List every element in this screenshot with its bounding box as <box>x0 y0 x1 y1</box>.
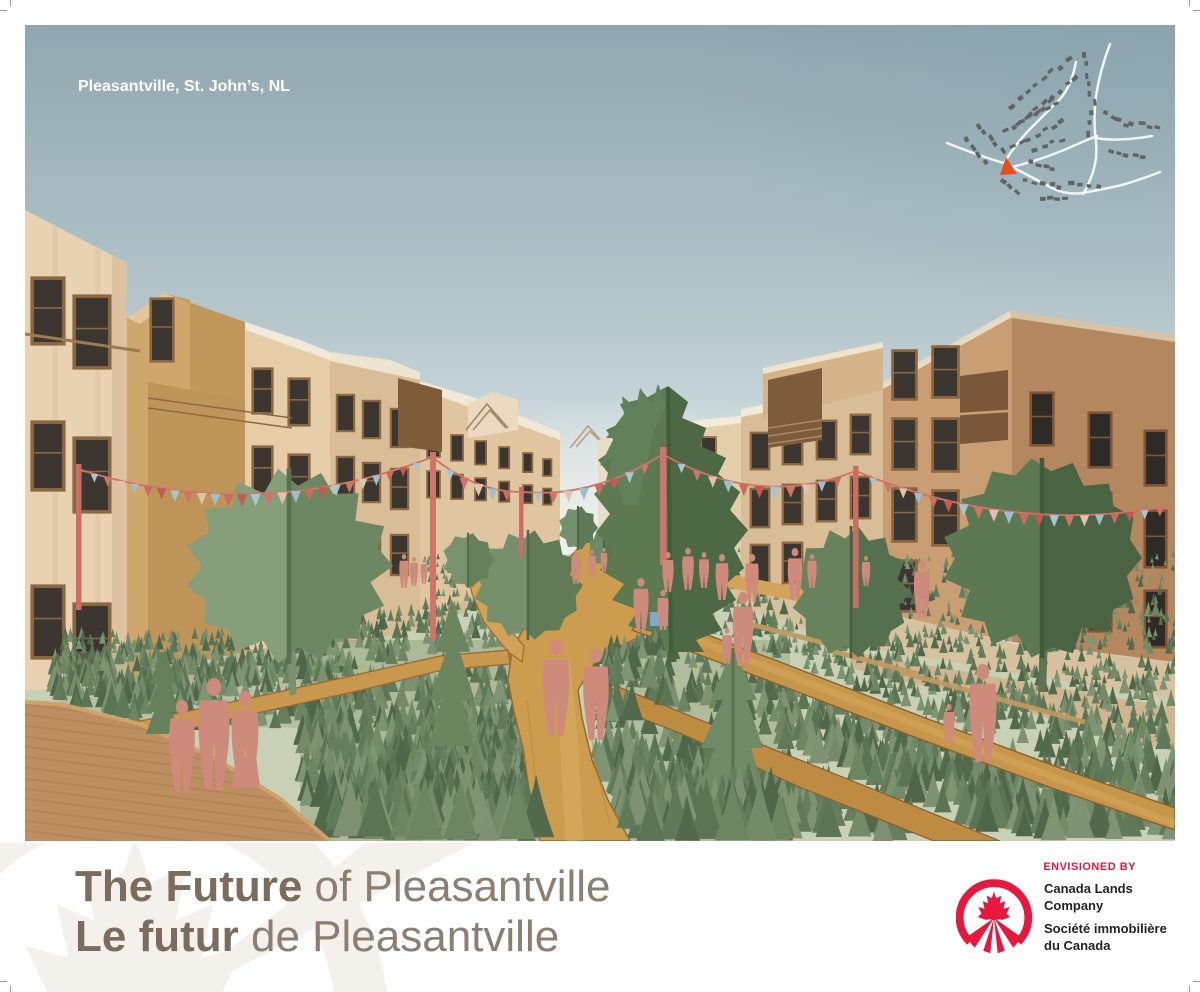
svg-text:Company: Company <box>1044 898 1104 913</box>
svg-text:Canada Lands: Canada Lands <box>1044 881 1133 896</box>
svg-text:Le futur de Pleasantville: Le futur de Pleasantville <box>75 912 559 961</box>
svg-text:du Canada: du Canada <box>1044 938 1111 953</box>
svg-text:The Future of Pleasantville: The Future of Pleasantville <box>75 862 611 911</box>
svg-text:ENVISIONED BY: ENVISIONED BY <box>1043 861 1136 873</box>
svg-text:Pleasantville, St. John’s, NL: Pleasantville, St. John’s, NL <box>78 78 290 95</box>
svg-text:Société immobilière: Société immobilière <box>1044 921 1167 936</box>
